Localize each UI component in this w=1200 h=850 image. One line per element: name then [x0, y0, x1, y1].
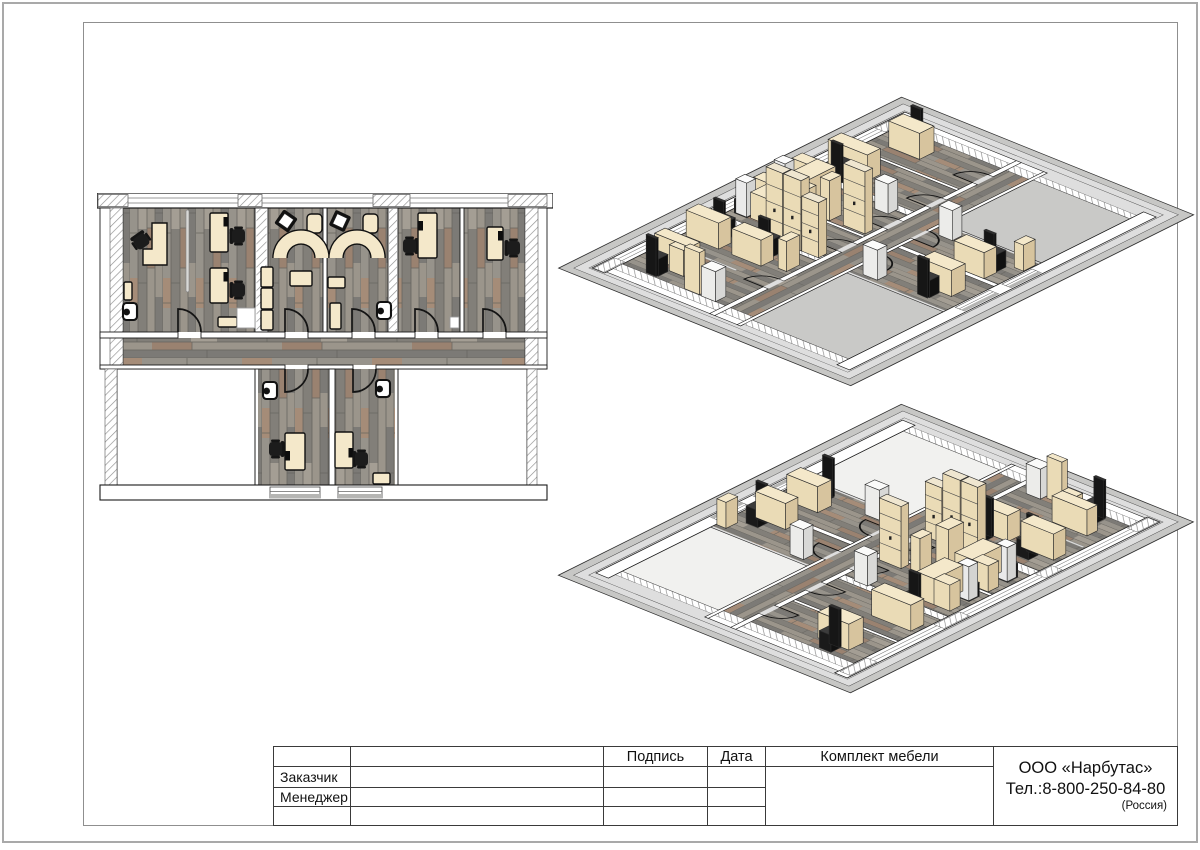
iso-view-bottom-floor	[558, 404, 1193, 693]
signature-column-header: Подпись	[604, 747, 708, 767]
title-block: Подпись Дата Комплект мебели Заказчик Ме…	[273, 746, 1178, 826]
furniture-set-field	[766, 767, 994, 825]
title-block-cell-empty	[351, 747, 604, 767]
company-phone: Тел.:8-800-250-84-80	[1002, 779, 1169, 800]
manager-name-field	[351, 788, 604, 807]
title-block-cell-empty	[708, 807, 766, 825]
manager-row-label: Менеджер	[274, 788, 351, 807]
customer-row-label: Заказчик	[274, 767, 351, 788]
company-country: (Россия)	[1002, 799, 1169, 813]
iso-views	[0, 0, 1200, 850]
title-block-cell-empty	[274, 807, 351, 825]
drawing-sheet: Подпись Дата Комплект мебели Заказчик Ме…	[0, 0, 1200, 850]
company-info: ООО «Нарбутас» Тел.:8-800-250-84-80 (Рос…	[994, 747, 1177, 825]
customer-signature-field	[604, 767, 708, 788]
title-block-cell-empty	[274, 747, 351, 767]
manager-date-field	[708, 788, 766, 807]
customer-date-field	[708, 767, 766, 788]
title-block-cell-empty	[351, 807, 604, 825]
date-column-header: Дата	[708, 747, 766, 767]
furniture-set-header: Комплект мебели	[766, 747, 994, 767]
company-name: ООО «Нарбутас»	[1002, 758, 1169, 779]
manager-signature-field	[604, 788, 708, 807]
customer-name-field	[351, 767, 604, 788]
title-block-cell-empty	[604, 807, 708, 825]
